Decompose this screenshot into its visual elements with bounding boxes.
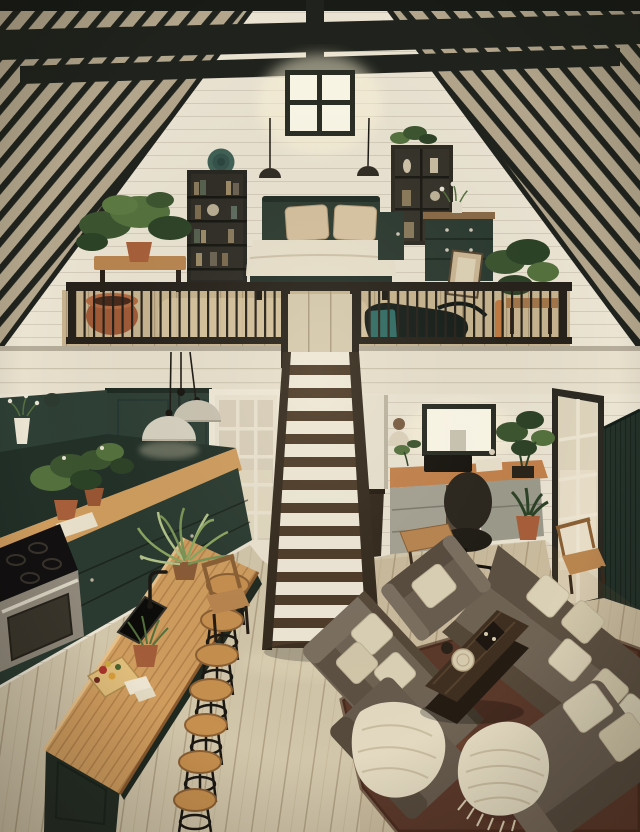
photo-vignette bbox=[0, 0, 640, 832]
scene-canvas bbox=[0, 0, 640, 832]
loft-interior-photo bbox=[0, 0, 640, 832]
